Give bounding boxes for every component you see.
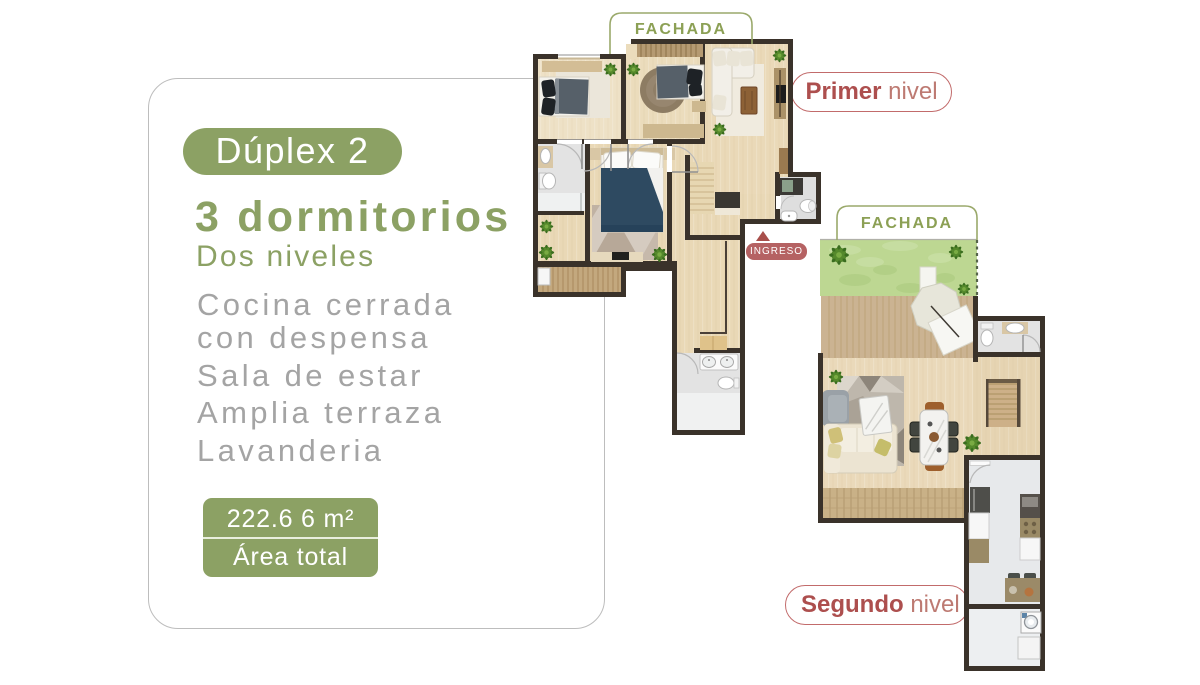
svg-text:FACHADA: FACHADA xyxy=(861,215,953,232)
svg-text:FACHADA: FACHADA xyxy=(635,21,727,38)
